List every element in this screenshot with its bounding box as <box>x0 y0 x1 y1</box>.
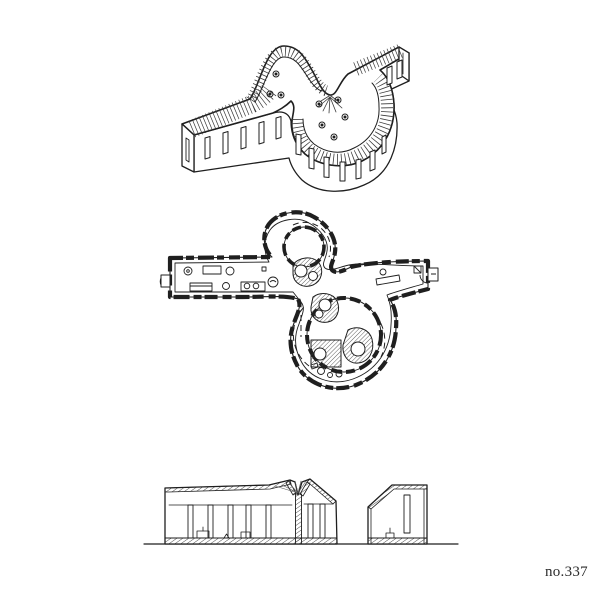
section-drawing <box>140 460 460 560</box>
figure-number-label: no.337 <box>545 564 588 581</box>
section-funnel-column <box>296 494 302 544</box>
section-right-block <box>368 485 427 544</box>
section-left-floor-slab <box>165 538 337 544</box>
drawing-plate: no.337 <box>0 0 600 600</box>
axonometric-drawing <box>148 22 448 202</box>
section-right-window <box>404 495 410 533</box>
floor-plan-drawing <box>143 205 463 405</box>
section-right-floor-slab <box>368 538 427 544</box>
section-left-block <box>165 479 337 544</box>
